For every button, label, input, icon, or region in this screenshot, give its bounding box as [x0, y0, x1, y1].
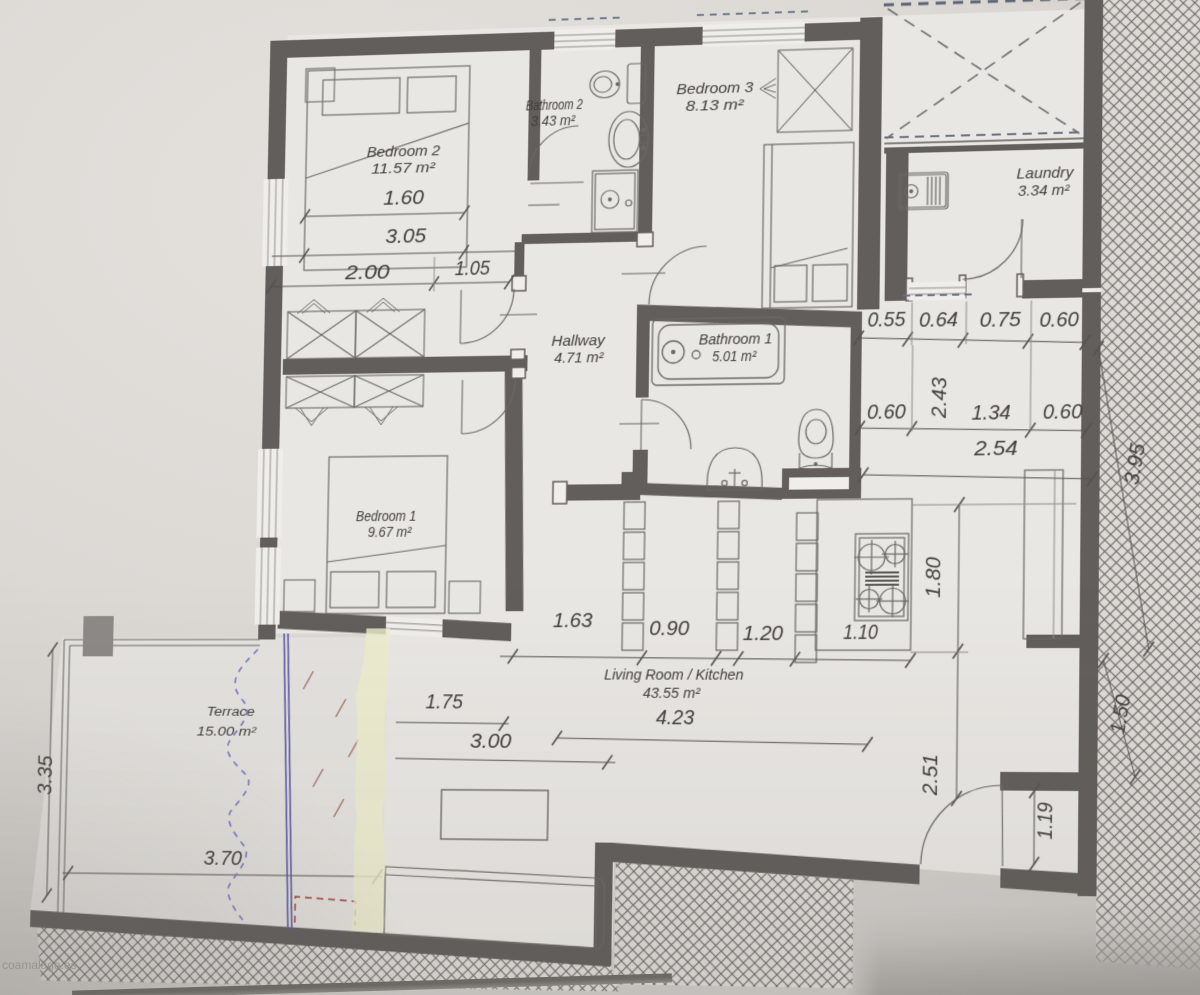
- svg-text:8.13 m²: 8.13 m²: [686, 95, 746, 114]
- svg-text:0.75: 0.75: [980, 308, 1022, 331]
- svg-text:1.75: 1.75: [425, 690, 464, 713]
- svg-text:3.00: 3.00: [470, 730, 512, 754]
- svg-text:3.35: 3.35: [34, 754, 57, 794]
- svg-text:Hallway: Hallway: [551, 331, 606, 349]
- svg-text:0.60: 0.60: [1043, 400, 1083, 423]
- svg-text:2.00: 2.00: [344, 261, 390, 285]
- svg-text:1.20: 1.20: [743, 622, 784, 645]
- svg-text:4.23: 4.23: [656, 706, 694, 730]
- svg-text:0.60: 0.60: [1039, 308, 1079, 331]
- svg-text:Bathroom 1: Bathroom 1: [699, 329, 773, 347]
- svg-text:Bathroom 2: Bathroom 2: [526, 96, 584, 113]
- svg-text:0.90: 0.90: [649, 617, 690, 640]
- svg-text:1.63: 1.63: [553, 609, 594, 631]
- svg-text:2.51: 2.51: [918, 754, 941, 796]
- svg-text:1.05: 1.05: [455, 257, 491, 281]
- svg-text:11.57 m²: 11.57 m²: [371, 159, 436, 176]
- svg-text:3.70: 3.70: [203, 847, 242, 871]
- svg-text:1.10: 1.10: [843, 620, 878, 643]
- svg-text:0.60: 0.60: [867, 400, 907, 423]
- svg-text:1.19: 1.19: [1033, 802, 1057, 840]
- svg-text:2.54: 2.54: [973, 436, 1018, 459]
- svg-text:3.34 m²: 3.34 m²: [1018, 182, 1070, 199]
- svg-text:9.67 m²: 9.67 m²: [368, 524, 413, 540]
- svg-text:1.34: 1.34: [971, 401, 1010, 424]
- svg-text:3.05: 3.05: [385, 224, 427, 248]
- svg-text:5.01 m²: 5.01 m²: [712, 348, 757, 365]
- svg-text:Living Room / Kitchen: Living Room / Kitchen: [604, 666, 744, 683]
- svg-text:Bedroom 1: Bedroom 1: [356, 508, 417, 524]
- svg-text:0.64: 0.64: [919, 308, 958, 331]
- svg-text:1.60: 1.60: [383, 186, 424, 210]
- svg-text:43.55 m²: 43.55 m²: [643, 685, 701, 701]
- svg-text:4.71 m²: 4.71 m²: [554, 349, 604, 366]
- svg-text:1.80: 1.80: [921, 556, 944, 598]
- svg-text:Bedroom 2: Bedroom 2: [367, 142, 441, 161]
- svg-text:Laundry: Laundry: [1016, 163, 1074, 182]
- svg-text:3.43 m²: 3.43 m²: [531, 112, 576, 129]
- svg-text:15.00 m²: 15.00 m²: [197, 723, 258, 739]
- svg-text:0.55: 0.55: [867, 308, 905, 331]
- svg-text:2.43: 2.43: [927, 377, 950, 420]
